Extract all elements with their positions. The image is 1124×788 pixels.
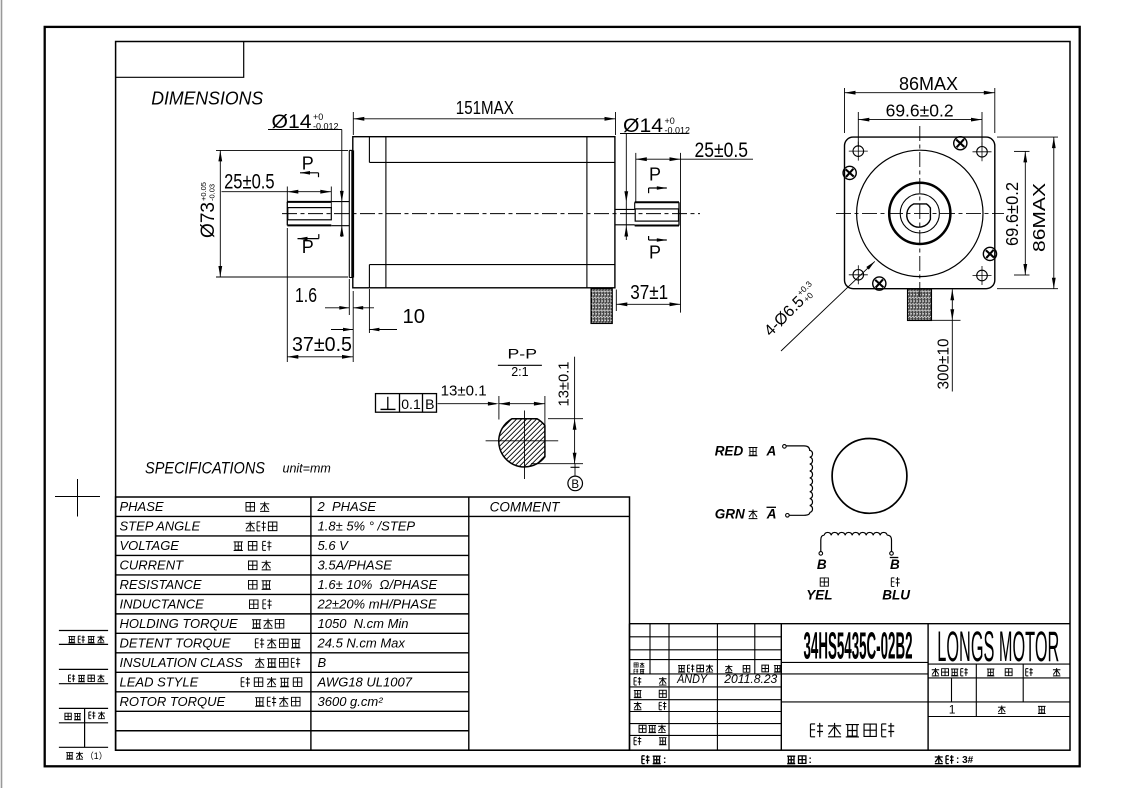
svg-text:5.6 V: 5.6 V xyxy=(318,538,350,553)
svg-text:B: B xyxy=(571,479,579,491)
svg-text:Ø73: Ø73 xyxy=(197,202,219,238)
svg-text:1.6± 10% Ω/PHASE: 1.6± 10% Ω/PHASE xyxy=(318,577,438,592)
svg-text::: : xyxy=(663,755,666,766)
svg-text:SPECIFICATIONS: SPECIFICATIONS xyxy=(145,460,265,478)
svg-text:unit=mm: unit=mm xyxy=(283,462,331,476)
svg-text:34HS5435C-02B2: 34HS5435C-02B2 xyxy=(804,626,913,668)
svg-text:10: 10 xyxy=(403,306,426,328)
svg-text:LEAD STYLE: LEAD STYLE xyxy=(120,675,199,690)
svg-text:CURRENT: CURRENT xyxy=(120,558,185,573)
svg-text::: : xyxy=(809,755,812,766)
svg-text:INDUCTANCE: INDUCTANCE xyxy=(120,597,205,612)
svg-text:1.6: 1.6 xyxy=(295,285,317,307)
svg-text:-0.03: -0.03 xyxy=(207,184,216,201)
svg-text:P-P: P-P xyxy=(508,347,538,362)
svg-text:1: 1 xyxy=(949,703,956,717)
svg-text:2 PHASE: 2 PHASE xyxy=(317,499,377,514)
svg-text:86MAX: 86MAX xyxy=(899,74,958,94)
svg-text:86MAX: 86MAX xyxy=(1029,183,1049,252)
svg-text:A: A xyxy=(766,506,777,521)
svg-text:69.6±0.2: 69.6±0.2 xyxy=(886,101,954,121)
svg-text:22±20% mH/PHASE: 22±20% mH/PHASE xyxy=(317,597,437,612)
svg-text:151MAX: 151MAX xyxy=(456,97,514,118)
svg-text:3600 g.cm²: 3600 g.cm² xyxy=(318,694,384,709)
svg-text:25±0.5: 25±0.5 xyxy=(695,139,749,162)
svg-text:P: P xyxy=(649,165,661,185)
svg-text:P: P xyxy=(302,237,314,257)
svg-text:B: B xyxy=(890,557,900,572)
svg-text:25±0.5: 25±0.5 xyxy=(224,171,275,194)
svg-text:P: P xyxy=(649,243,661,263)
svg-text:24.5 N.cm Max: 24.5 N.cm Max xyxy=(317,636,406,651)
svg-text:（1）: （1） xyxy=(85,751,108,761)
svg-text:ROTOR TORQUE: ROTOR TORQUE xyxy=(120,694,226,709)
svg-text:GRN: GRN xyxy=(715,506,745,521)
svg-text:1.8± 5% ° /STEP: 1.8± 5% ° /STEP xyxy=(318,519,416,534)
svg-text:DIMENSIONS: DIMENSIONS xyxy=(151,88,263,108)
svg-text:RED: RED xyxy=(715,443,744,458)
svg-text:STEP ANGLE: STEP ANGLE xyxy=(120,519,201,534)
svg-text:DETENT TORQUE: DETENT TORQUE xyxy=(120,636,231,651)
svg-text:B: B xyxy=(318,655,327,670)
svg-text:HOLDING TORQUE: HOLDING TORQUE xyxy=(120,616,239,631)
svg-text:ANDY: ANDY xyxy=(676,674,708,686)
svg-text:: 3#: : 3# xyxy=(956,755,974,766)
svg-text:3.5A/PHASE: 3.5A/PHASE xyxy=(318,558,393,573)
svg-text:1050 N.cm Min: 1050 N.cm Min xyxy=(318,616,409,631)
svg-text:VOLTAGE: VOLTAGE xyxy=(120,538,180,553)
svg-text:0.1: 0.1 xyxy=(401,396,421,412)
svg-text:13±0.1: 13±0.1 xyxy=(441,382,487,399)
svg-text:13±0.1: 13±0.1 xyxy=(556,362,573,407)
svg-text:B: B xyxy=(817,557,827,572)
svg-text:PHASE: PHASE xyxy=(120,499,164,514)
svg-text:AWG18 UL1007: AWG18 UL1007 xyxy=(317,675,413,690)
svg-text:P: P xyxy=(302,154,314,174)
svg-text:69.6±0.2: 69.6±0.2 xyxy=(1002,182,1022,246)
svg-text:B: B xyxy=(425,396,434,412)
svg-text:A: A xyxy=(766,443,777,458)
svg-text:YEL: YEL xyxy=(806,588,832,603)
svg-text:37±0.5: 37±0.5 xyxy=(292,334,352,356)
svg-text:BLU: BLU xyxy=(882,588,911,603)
svg-text:2:1: 2:1 xyxy=(511,365,528,379)
svg-text:COMMENT: COMMENT xyxy=(490,500,561,515)
svg-text:INSULATION CLASS: INSULATION CLASS xyxy=(120,655,244,670)
svg-text:2011.8.23: 2011.8.23 xyxy=(723,674,778,686)
svg-text:300±10: 300±10 xyxy=(935,338,952,389)
svg-text:RESISTANCE: RESISTANCE xyxy=(120,577,202,592)
svg-text:37±1: 37±1 xyxy=(630,282,668,304)
